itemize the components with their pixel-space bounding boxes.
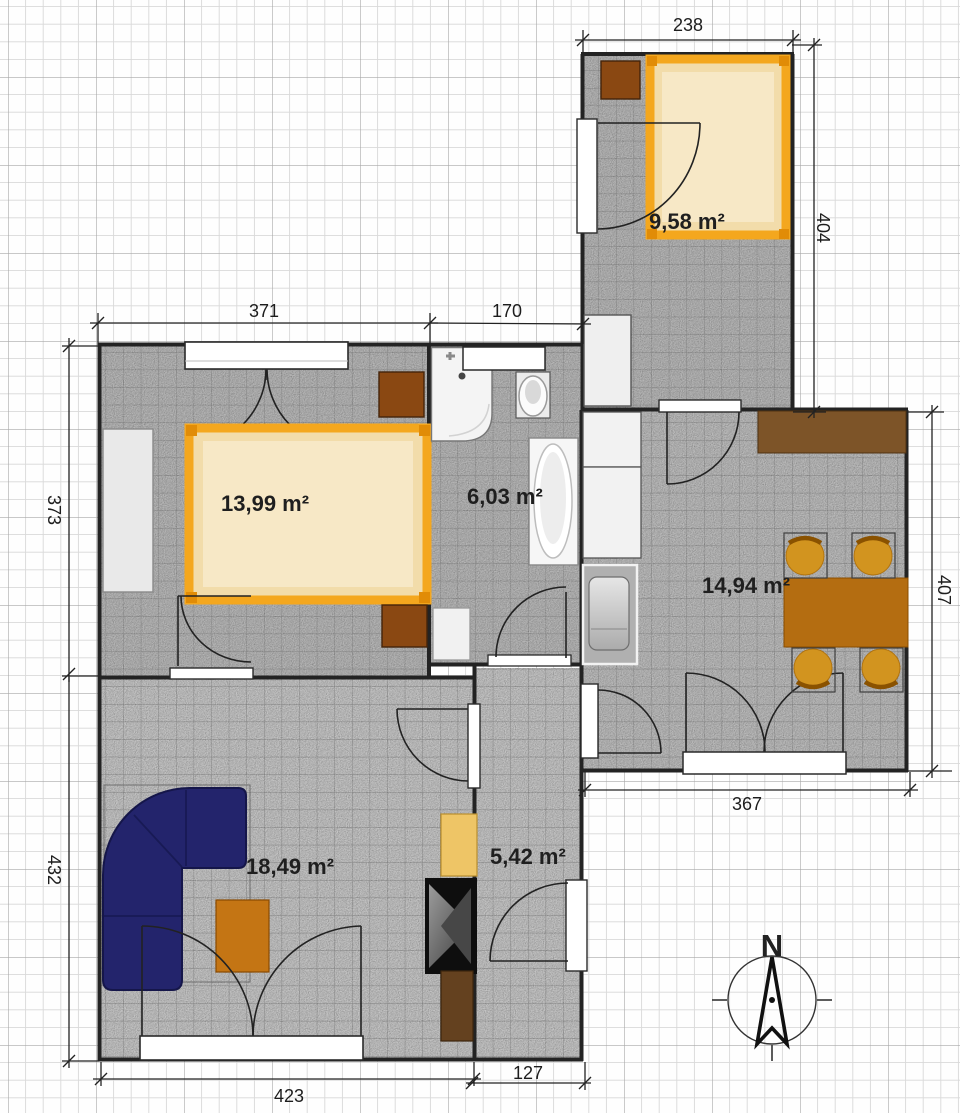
svg-text:407: 407 [934, 575, 954, 605]
svg-text:238: 238 [673, 15, 703, 35]
svg-text:432: 432 [44, 855, 64, 885]
svg-text:371: 371 [249, 301, 279, 321]
svg-text:14,94 m²: 14,94 m² [702, 573, 790, 598]
svg-text:170: 170 [492, 301, 522, 321]
svg-text:127: 127 [513, 1063, 543, 1083]
svg-text:404: 404 [813, 213, 833, 243]
svg-text:367: 367 [732, 794, 762, 814]
svg-text:18,49 m²: 18,49 m² [246, 854, 334, 879]
svg-text:9,58 m²: 9,58 m² [649, 209, 725, 234]
svg-text:373: 373 [44, 495, 64, 525]
svg-text:5,42 m²: 5,42 m² [490, 844, 566, 869]
svg-text:423: 423 [274, 1086, 304, 1106]
svg-text:13,99 m²: 13,99 m² [221, 491, 309, 516]
svg-text:6,03 m²: 6,03 m² [467, 484, 543, 509]
